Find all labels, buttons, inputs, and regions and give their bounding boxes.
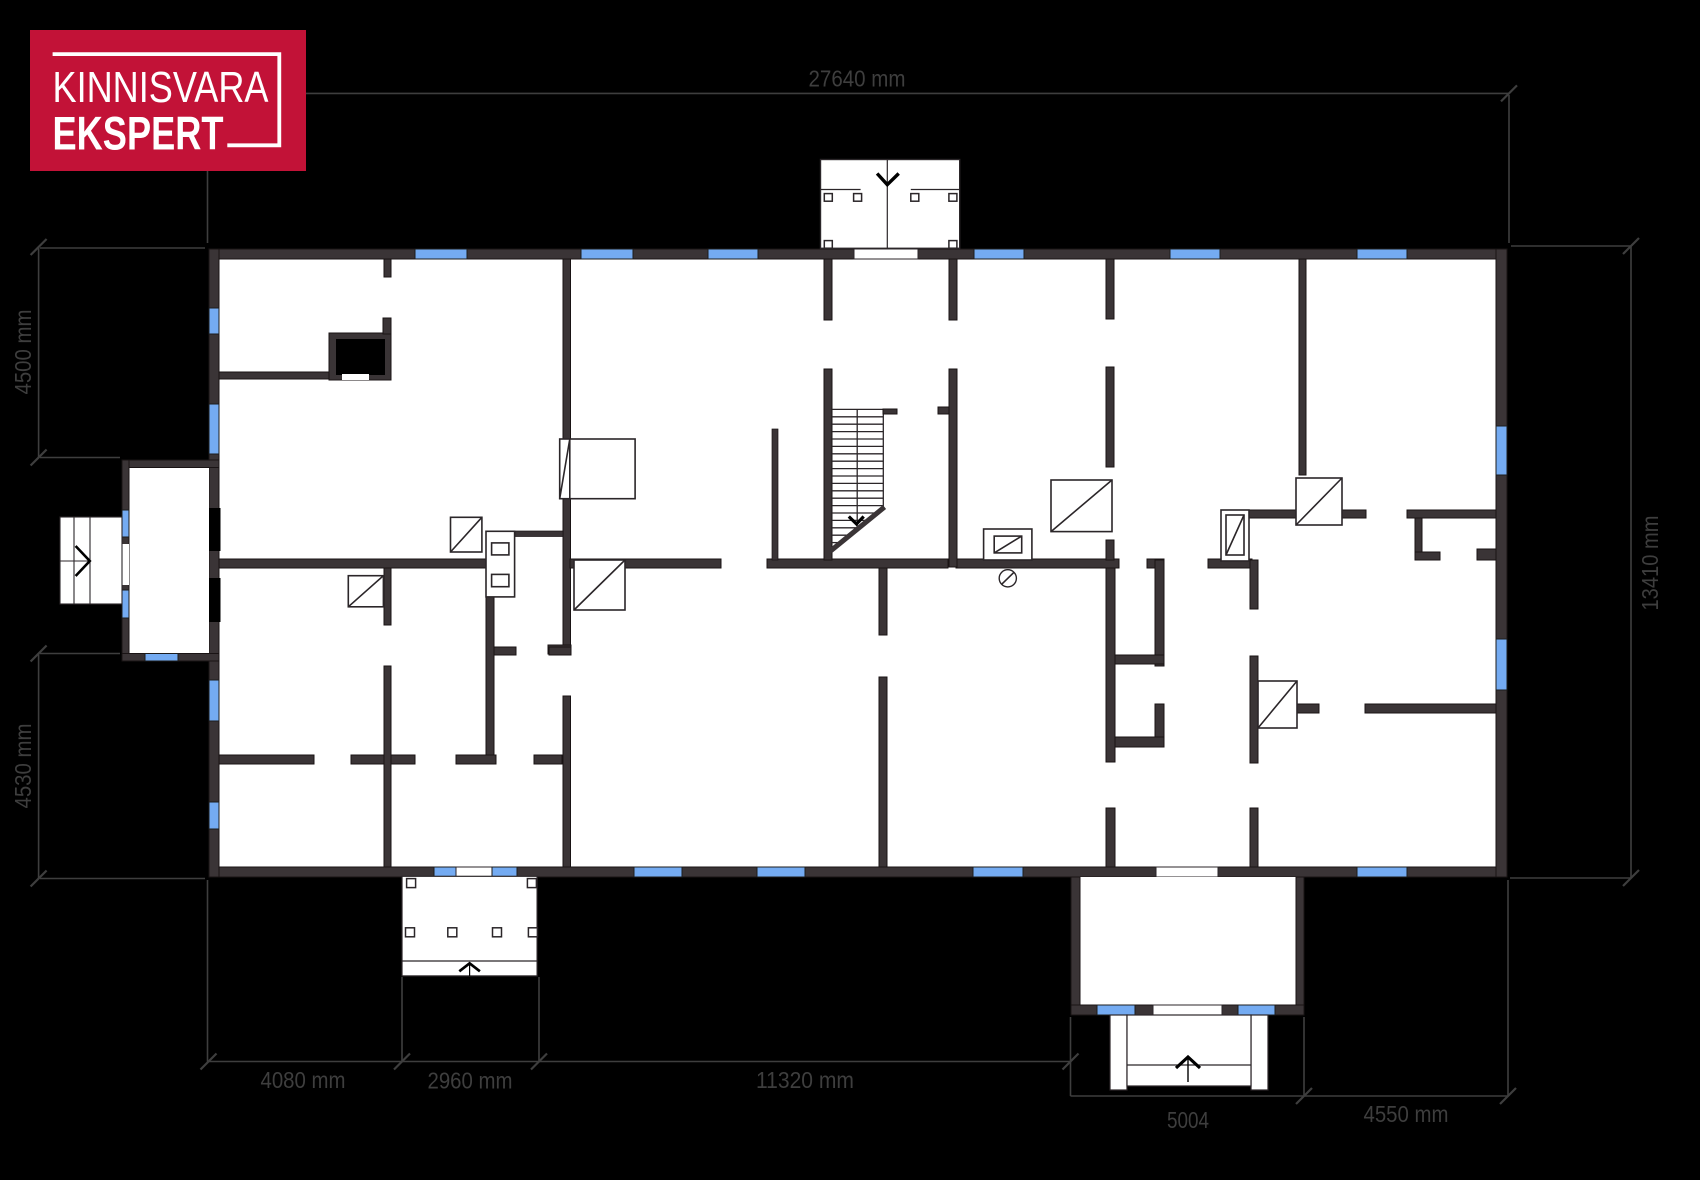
svg-text:2960 mm: 2960 mm [428, 1068, 513, 1094]
svg-text:EKSPERT: EKSPERT [53, 108, 224, 161]
svg-text:13410 mm: 13410 mm [1637, 516, 1663, 611]
svg-text:4530 mm: 4530 mm [10, 724, 36, 809]
svg-text:4080 mm: 4080 mm [261, 1067, 346, 1093]
svg-text:11320 mm: 11320 mm [756, 1067, 854, 1093]
svg-text:27640 mm: 27640 mm [809, 66, 906, 92]
svg-text:5004: 5004 [1167, 1107, 1209, 1133]
svg-text:4550 mm: 4550 mm [1364, 1101, 1449, 1127]
svg-text:4500 mm: 4500 mm [10, 310, 36, 395]
svg-text:KINNISVARA: KINNISVARA [53, 64, 269, 112]
